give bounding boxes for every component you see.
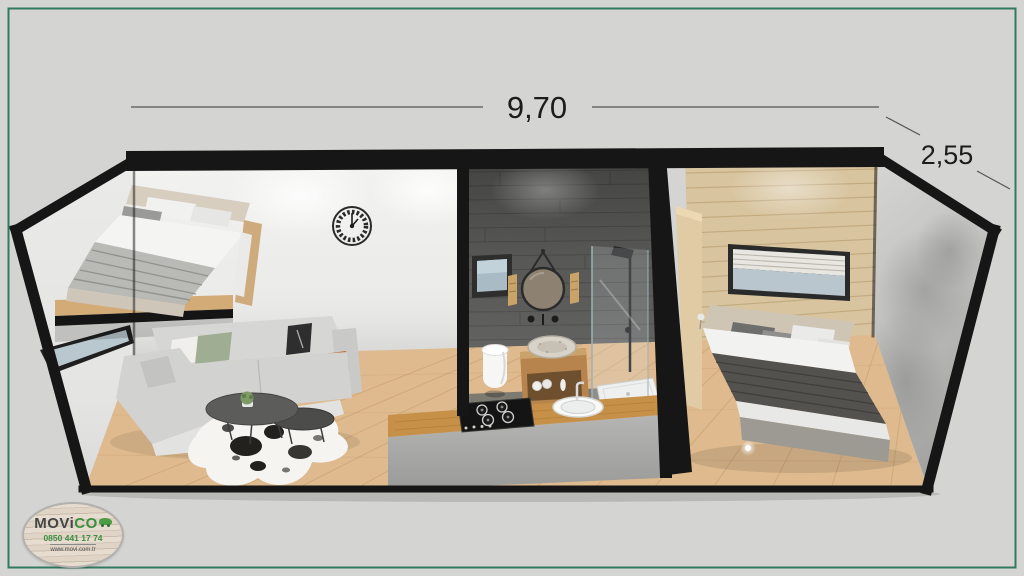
dimension-depth-tick-lower: [977, 171, 1010, 189]
logo-brand: MOViCO: [34, 516, 112, 531]
towel-roll: [533, 382, 542, 391]
logo-brand-movi: MOVi: [34, 516, 74, 531]
dimension-width-label: 9,70: [507, 90, 567, 125]
towel-roll: [543, 380, 552, 389]
pillow-black: [286, 323, 312, 355]
floorplan-3d-render: 9,70 2,55: [0, 0, 1024, 576]
floor-light: [740, 440, 756, 456]
gas-cooktop: [458, 398, 534, 432]
dimension-depth-tick-upper: [886, 117, 920, 135]
logo-movico: MOViCO 0850 441 17 74 www.movi.com.tr: [22, 502, 124, 568]
logo-brand-co: CO: [74, 516, 98, 531]
vase: [560, 379, 566, 391]
ceiling-light-glow: [490, 160, 600, 220]
bedroom-window: [728, 244, 850, 301]
framed-wall-panel: [472, 254, 512, 298]
floorplan-page: 9,70 2,55 MOViCO 0850 441 17 74 www.movi…: [0, 0, 1024, 576]
wood-sconce-left: [508, 274, 517, 306]
logo-car-icon: [99, 518, 112, 525]
logo-website: www.movi.com.tr: [50, 544, 95, 554]
dimension-depth-label: 2,55: [921, 140, 974, 170]
pillow-green: [195, 332, 232, 364]
dimension-width: 9,70: [131, 90, 879, 125]
top-edge-band: [126, 147, 884, 171]
logo-phone: 0850 441 17 74: [43, 533, 102, 543]
wood-sconce-right: [570, 272, 579, 304]
